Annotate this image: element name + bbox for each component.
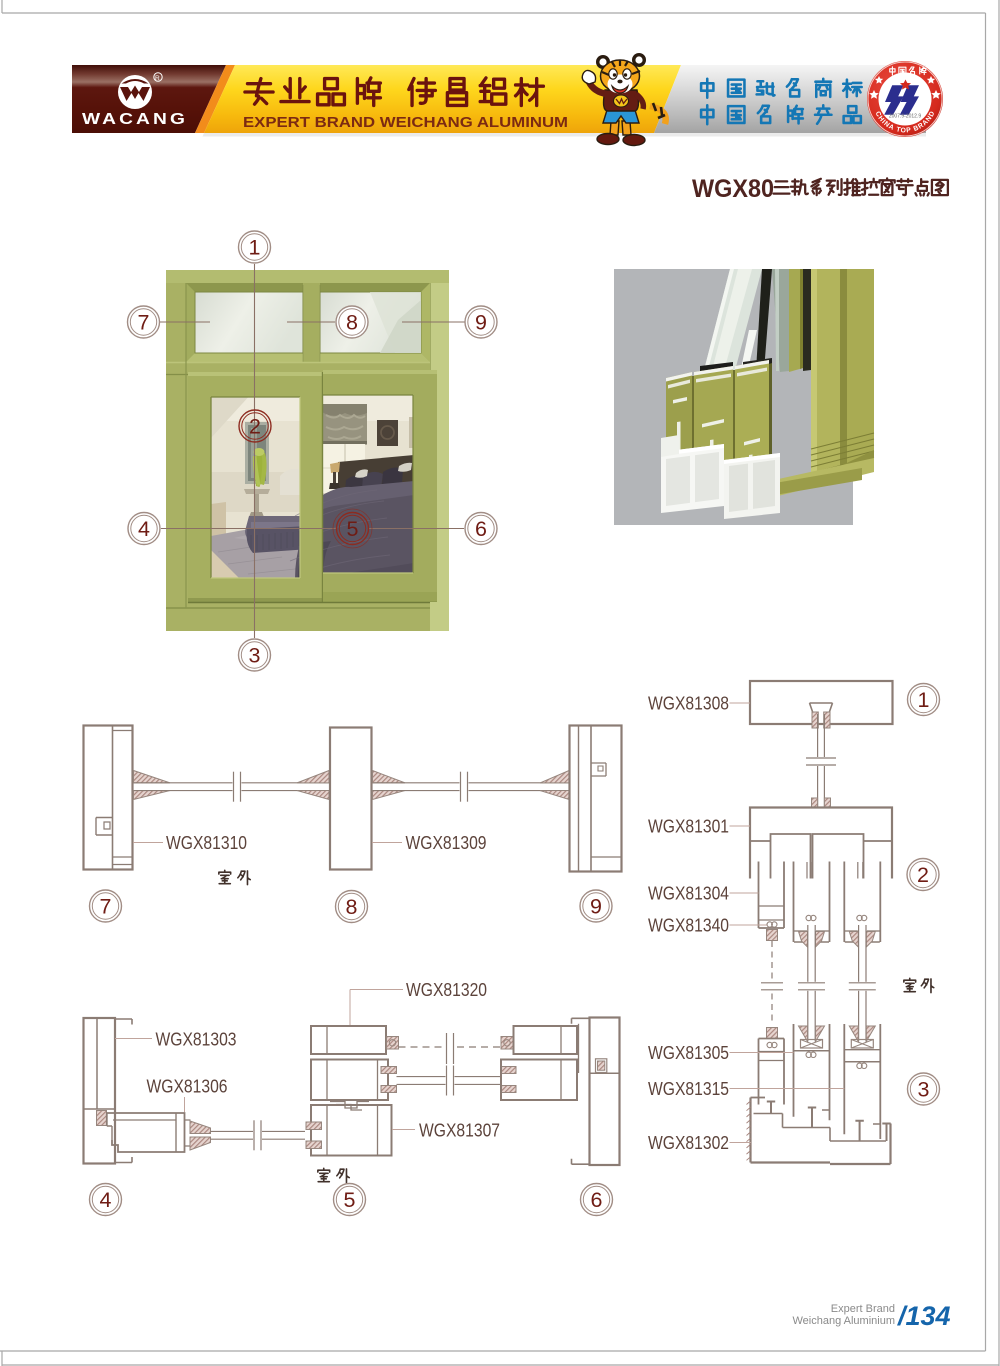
svg-text:4: 4 [100, 1188, 112, 1212]
svg-text:5: 5 [347, 517, 359, 541]
svg-text:3: 3 [918, 1078, 930, 1102]
svg-text:WGX81320: WGX81320 [406, 979, 487, 1000]
svg-text:5: 5 [344, 1188, 356, 1212]
svg-text:9: 9 [590, 895, 602, 919]
svg-text:8: 8 [346, 311, 358, 335]
svg-text:R: R [155, 75, 160, 82]
svg-text:/134: /134 [897, 1301, 951, 1331]
svg-text:Weichang Aluminium: Weichang Aluminium [792, 1315, 895, 1327]
svg-text:WGX81305: WGX81305 [648, 1042, 729, 1063]
svg-text:WGX81301: WGX81301 [648, 816, 729, 837]
svg-text:WGX81303: WGX81303 [156, 1029, 237, 1050]
svg-text:7: 7 [100, 895, 112, 919]
svg-text:WGX81306: WGX81306 [147, 1076, 228, 1097]
svg-text:2007.9-2012.9: 2007.9-2012.9 [889, 114, 921, 120]
svg-text:6: 6 [591, 1188, 603, 1212]
svg-text:8: 8 [346, 895, 358, 919]
svg-text:WGX81315: WGX81315 [648, 1078, 729, 1099]
svg-text:1: 1 [249, 236, 261, 260]
svg-text:2: 2 [917, 863, 929, 887]
svg-text:WGX81304: WGX81304 [648, 883, 729, 904]
svg-text:1: 1 [918, 688, 930, 712]
svg-text:WGX81308: WGX81308 [648, 693, 729, 714]
svg-text:2: 2 [249, 415, 261, 439]
svg-text:6: 6 [475, 517, 487, 541]
svg-text:WGX81302: WGX81302 [648, 1132, 729, 1153]
svg-text:WGX81307: WGX81307 [419, 1120, 500, 1141]
svg-text:WACANG: WACANG [82, 111, 188, 128]
svg-text:WGX80: WGX80 [692, 175, 774, 203]
svg-text:EXPERT BRAND WEICHANG ALUMINUM: EXPERT BRAND WEICHANG ALUMINUM [243, 115, 568, 131]
svg-text:9: 9 [475, 311, 487, 335]
svg-text:WGX81309: WGX81309 [406, 832, 487, 853]
svg-text:7: 7 [138, 311, 150, 335]
svg-text:4: 4 [138, 517, 150, 541]
svg-text:WGX81340: WGX81340 [648, 915, 729, 936]
svg-text:WGX81310: WGX81310 [166, 832, 247, 853]
svg-text:3: 3 [249, 644, 261, 668]
svg-text:Expert Brand: Expert Brand [831, 1303, 895, 1315]
